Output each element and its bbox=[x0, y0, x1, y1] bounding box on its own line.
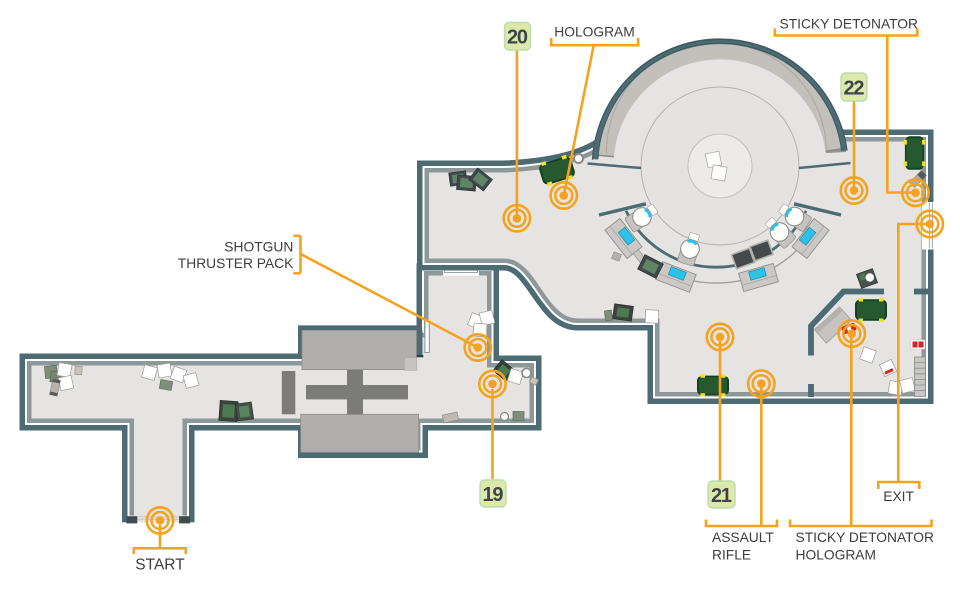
svg-text:RIFLE: RIFLE bbox=[712, 548, 751, 563]
svg-text:START: START bbox=[135, 557, 185, 574]
svg-text:THRUSTER PACK: THRUSTER PACK bbox=[178, 256, 294, 271]
svg-text:STICKY DETONATOR: STICKY DETONATOR bbox=[796, 530, 935, 545]
svg-text:HOLOGRAM: HOLOGRAM bbox=[554, 25, 635, 40]
svg-text:EXIT: EXIT bbox=[883, 489, 914, 504]
svg-text:ASSAULT: ASSAULT bbox=[712, 530, 774, 545]
svg-text:19: 19 bbox=[483, 484, 504, 506]
svg-text:20: 20 bbox=[507, 27, 528, 49]
svg-text:SHOTGUN: SHOTGUN bbox=[224, 240, 293, 255]
svg-text:22: 22 bbox=[844, 78, 865, 100]
svg-text:21: 21 bbox=[711, 485, 732, 507]
svg-text:HOLOGRAM: HOLOGRAM bbox=[796, 548, 877, 563]
svg-text:STICKY DETONATOR: STICKY DETONATOR bbox=[780, 16, 919, 31]
